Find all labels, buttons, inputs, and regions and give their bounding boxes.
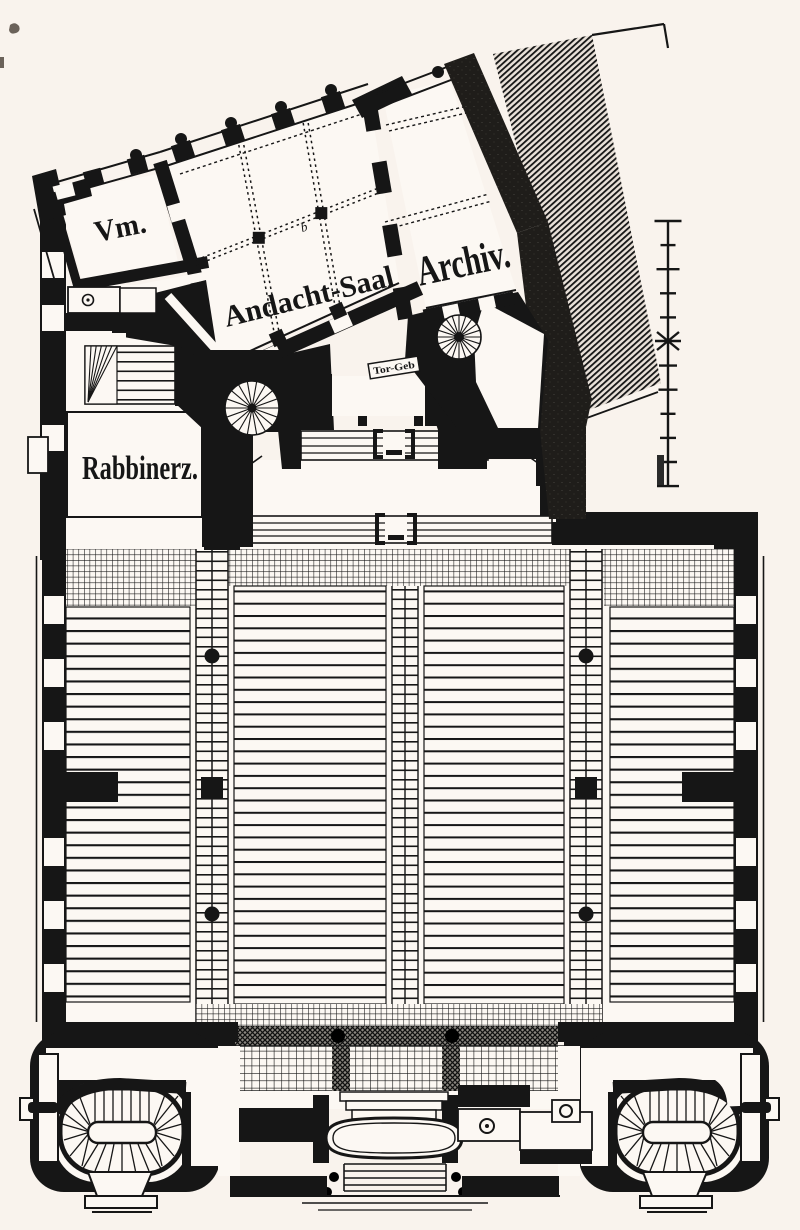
svg-text:Rabbinerz.: Rabbinerz. bbox=[82, 450, 198, 487]
